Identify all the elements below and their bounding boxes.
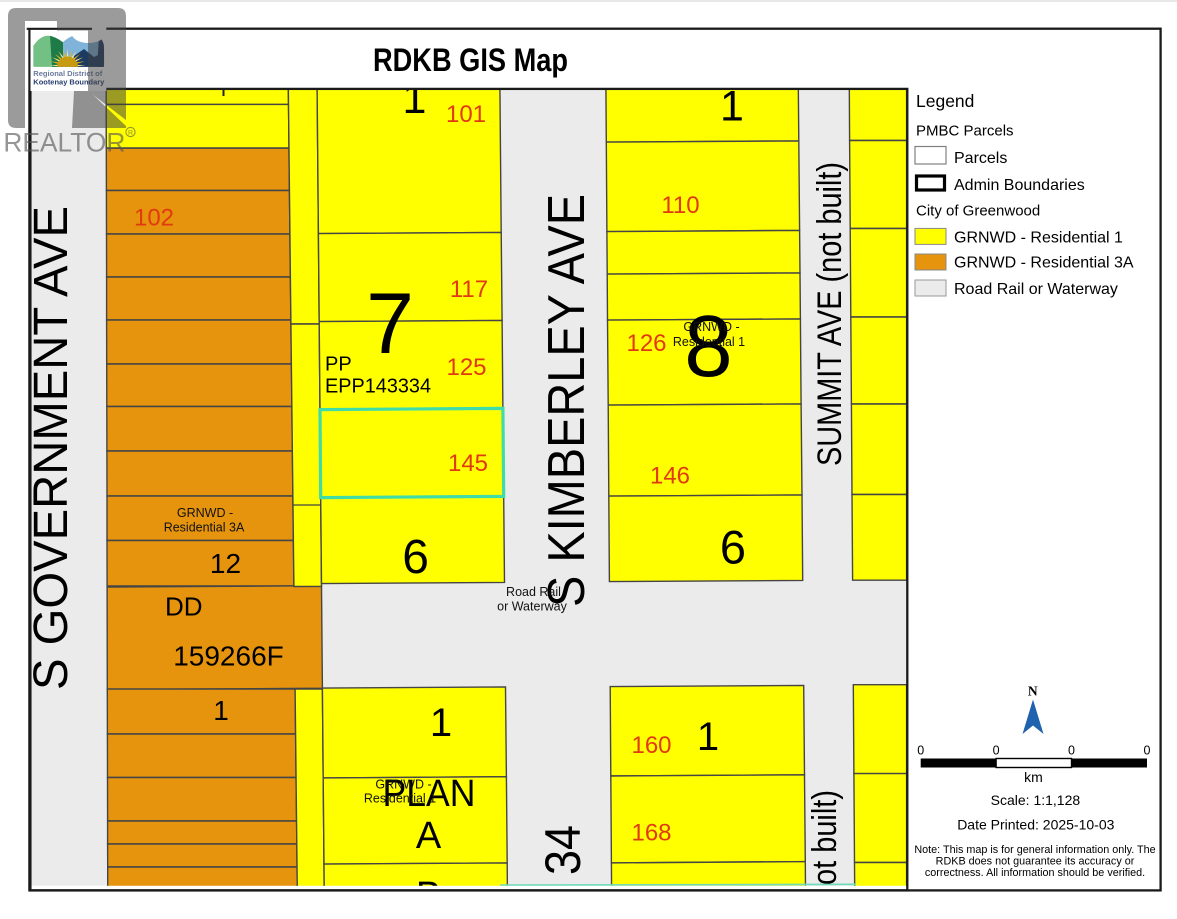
svg-text:GRNWD -: GRNWD - [683, 320, 739, 334]
svg-text:168: 168 [631, 820, 671, 847]
svg-text:DD: DD [165, 592, 203, 622]
svg-text:Residential 3A: Residential 3A [164, 521, 245, 535]
svg-text:Residential 1: Residential 1 [364, 792, 436, 806]
svg-text:R: R [128, 130, 133, 137]
svg-text:correctness. All information s: correctness. All information should be v… [925, 867, 1145, 879]
svg-text:Legend: Legend [916, 91, 974, 111]
svg-text:RDKB GIS Map: RDKB GIS Map [373, 42, 568, 78]
svg-text:S GOVERNMENT AVE: S GOVERNMENT AVE [24, 206, 78, 690]
svg-text:Scale: 1:1,128: Scale: 1:1,128 [991, 792, 1081, 808]
svg-text:0: 0 [1068, 744, 1075, 758]
svg-text:RDKB does not guarantee its ac: RDKB does not guarantee its accuracy or [936, 856, 1135, 868]
svg-text:1: 1 [430, 701, 452, 745]
svg-text:7: 7 [366, 276, 414, 372]
svg-text:159266F: 159266F [173, 641, 284, 672]
svg-text:City of Greenwood: City of Greenwood [916, 203, 1040, 220]
svg-text:Date Printed: 2025-10-03: Date Printed: 2025-10-03 [957, 817, 1114, 833]
svg-text:EPP143334: EPP143334 [325, 376, 431, 398]
svg-text:S KIMBERLEY AVE: S KIMBERLEY AVE [538, 194, 596, 607]
svg-text:6: 6 [402, 531, 429, 584]
svg-text:145: 145 [448, 450, 488, 477]
svg-text:0: 0 [917, 744, 924, 758]
svg-text:GRNWD -: GRNWD - [177, 506, 233, 520]
svg-text:Residential 1: Residential 1 [673, 335, 745, 349]
svg-text:Admin Boundaries: Admin Boundaries [954, 177, 1085, 194]
svg-text:or Waterway: or Waterway [497, 600, 567, 614]
svg-text:PMBC Parcels: PMBC Parcels [916, 123, 1014, 140]
svg-text:Note: This map is for general: Note: This map is for general informatio… [914, 844, 1155, 856]
svg-text:146: 146 [650, 463, 690, 490]
svg-text:1: 1 [213, 695, 229, 726]
svg-text:Road Rail or Waterway: Road Rail or Waterway [954, 281, 1118, 298]
svg-text:ot built): ot built) [806, 790, 844, 885]
svg-text:34: 34 [535, 825, 591, 875]
svg-text:110: 110 [661, 192, 699, 219]
svg-text:PP: PP [325, 354, 352, 376]
svg-text:REALTOR: REALTOR [3, 128, 125, 158]
svg-text:126: 126 [626, 330, 666, 357]
svg-text:6: 6 [720, 521, 746, 574]
svg-text:Road Rail: Road Rail [506, 585, 561, 599]
svg-text:N: N [1028, 684, 1038, 699]
svg-text:102: 102 [134, 205, 174, 232]
svg-text:117: 117 [450, 276, 488, 303]
svg-text:GRNWD - Residential 1: GRNWD - Residential 1 [954, 230, 1123, 247]
svg-text:101: 101 [446, 101, 486, 128]
svg-text:12: 12 [210, 548, 241, 579]
svg-text:0: 0 [1144, 744, 1151, 758]
svg-text:SUMMIT AVE (not built): SUMMIT AVE (not built) [811, 162, 849, 466]
svg-text:Parcels: Parcels [954, 150, 1007, 167]
svg-text:0: 0 [993, 744, 1000, 758]
svg-text:1: 1 [697, 715, 719, 759]
svg-text:125: 125 [446, 354, 486, 381]
svg-text:GRNWD - Residential 3A: GRNWD - Residential 3A [954, 255, 1134, 272]
svg-text:km: km [1024, 769, 1043, 785]
svg-text:160: 160 [631, 732, 671, 759]
svg-text:GRNWD -: GRNWD - [375, 778, 431, 792]
svg-text:A: A [416, 815, 442, 857]
